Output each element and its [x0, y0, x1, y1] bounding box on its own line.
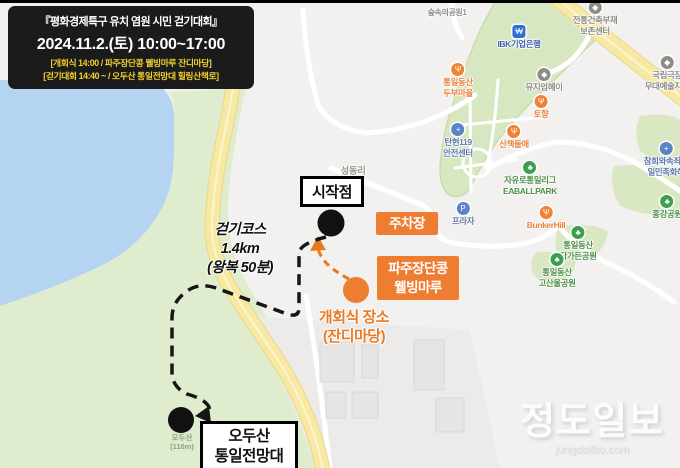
map-screenshot: 숲속의공원1₩IBK기업은행◆전통건축부재보존센터◆국립극장무대예술지원Ψ통일동…: [0, 0, 680, 468]
poi-label: 산책들애: [499, 139, 529, 150]
map-poi-heunggang-park: ♣흥강공원: [652, 195, 680, 220]
observatory-text-2: 통일전망대: [207, 447, 291, 467]
map-poi-ibk-bank: ₩IBK기업은행: [497, 25, 540, 50]
start-point-text: 시작점: [312, 184, 352, 201]
restaurant-icon: Ψ: [535, 95, 548, 108]
theater-icon: ◆: [661, 56, 674, 69]
poi-label: 통일동산: [563, 240, 593, 251]
map-poi-plaza: P프라자: [452, 202, 474, 227]
poi-label: 프라자: [452, 216, 474, 227]
bank-icon: ₩: [513, 25, 526, 38]
image-top-border: [0, 0, 680, 3]
map-poi-gosanul-park: ♣통일동산고산울공원: [538, 253, 575, 289]
mountain-elevation: (110m): [170, 442, 194, 451]
course-text-1: 걷기코스: [207, 221, 273, 240]
mountain-elevation-label: 오두산 (110m): [170, 433, 194, 451]
poi-label: 전통건축부재: [573, 15, 618, 26]
wellbeing-maru-label: 파주장단콩 웰빙마루: [377, 256, 459, 300]
park-icon: ♣: [524, 161, 537, 174]
poi-label: 국립극장: [652, 70, 680, 81]
park-icon: ♣: [571, 226, 584, 239]
plaza-icon: P: [456, 202, 469, 215]
ceremony-location-label: 개회식 장소 (잔디마당): [319, 309, 389, 347]
map-poi-museum-hey: ◆뮤지엄헤이: [525, 68, 562, 93]
park-icon: ♣: [661, 195, 674, 208]
course-text-3: (왕복 50분): [207, 259, 273, 278]
map-poi-atonement-church: +참회와속죄의일민족화해: [644, 142, 680, 178]
ceremony-text-1: 개회식 장소: [319, 309, 389, 328]
poi-label: 토향: [534, 109, 549, 120]
poi-label: 통일동산: [542, 267, 572, 278]
poi-label: 뮤지엄헤이: [525, 82, 562, 93]
poi-label: EABALLPARK: [503, 186, 557, 197]
fire-station-icon: +: [452, 123, 465, 136]
poi-label: 참회와속죄의: [644, 156, 680, 167]
map-poi-sanchaek: Ψ산책들애: [499, 125, 529, 150]
church-icon: +: [660, 142, 673, 155]
map-poi-forest-park: 숲속의공원1: [428, 8, 467, 18]
wellbeing-text-2: 웰빙마루: [377, 278, 459, 297]
poi-label: IBK기업은행: [497, 39, 540, 50]
event-title: 『평화경제특구 유치 염원 시민 걷기대회』: [10, 13, 252, 29]
poi-label: 두부마을: [443, 88, 473, 99]
map-poi-national-theater: ◆국립극장무대예술지원: [645, 56, 680, 92]
course-distance-label: 걷기코스 1.4km (왕복 50분): [207, 221, 273, 278]
map-poi-heritage-center: ◆전통건축부재보존센터: [573, 1, 618, 37]
event-datetime: 2024.11.2.(토) 10:00~17:00: [10, 30, 252, 54]
map-poi-fire-station-119: +탄현119안전센터: [443, 123, 473, 159]
restaurant-icon: Ψ: [452, 63, 465, 76]
poi-label: 흥강공원: [652, 209, 680, 220]
observatory-label: 오두산 통일전망대: [200, 421, 298, 468]
map-poi-tohyang: Ψ토향: [534, 95, 549, 120]
poi-label: 일민족화해: [647, 167, 680, 178]
start-point-label: 시작점: [300, 176, 364, 207]
course-text-2: 1.4km: [207, 240, 273, 259]
observatory-text-1: 오두산: [207, 427, 291, 447]
event-info-panel: 『평화경제특구 유치 염원 시민 걷기대회』 2024.11.2.(토) 10:…: [8, 6, 254, 89]
wellbeing-text-1: 파주장단콩: [377, 259, 459, 278]
mountain-name: 오두산: [170, 433, 194, 442]
parking-label: 주차장: [376, 212, 438, 235]
map-poi-eaballpark: ♣자유로통일리그EABALLPARK: [503, 161, 557, 197]
restaurant-icon: Ψ: [508, 125, 521, 138]
parking-text: 주차장: [389, 216, 425, 231]
park-icon: ♣: [550, 253, 563, 266]
poi-label: 보존센터: [580, 26, 610, 37]
poi-label: 자유로통일리그: [504, 175, 556, 186]
poi-label: 안전센터: [443, 148, 473, 159]
poi-label: 무대예술지원: [645, 81, 680, 92]
poi-label: 통일동산: [443, 77, 473, 88]
restaurant-icon: Ψ: [539, 206, 552, 219]
ceremony-text-2: (잔디마당): [319, 328, 389, 347]
map-poi-tofu-village: Ψ통일동산두부마을: [443, 63, 473, 99]
event-schedule-1: [개회식 14:00 / 파주장단콩 웰빙마루 잔디마당]: [10, 57, 252, 70]
poi-label: 탄현119: [444, 137, 471, 148]
poi-label: 고산울공원: [538, 278, 575, 289]
museum-icon: ◆: [537, 68, 550, 81]
event-schedule-2: [걷기대회 14:40 ~ / 오두산 통일전망대 힐링산책로]: [10, 70, 252, 83]
poi-label: 숲속의공원1: [428, 8, 467, 18]
